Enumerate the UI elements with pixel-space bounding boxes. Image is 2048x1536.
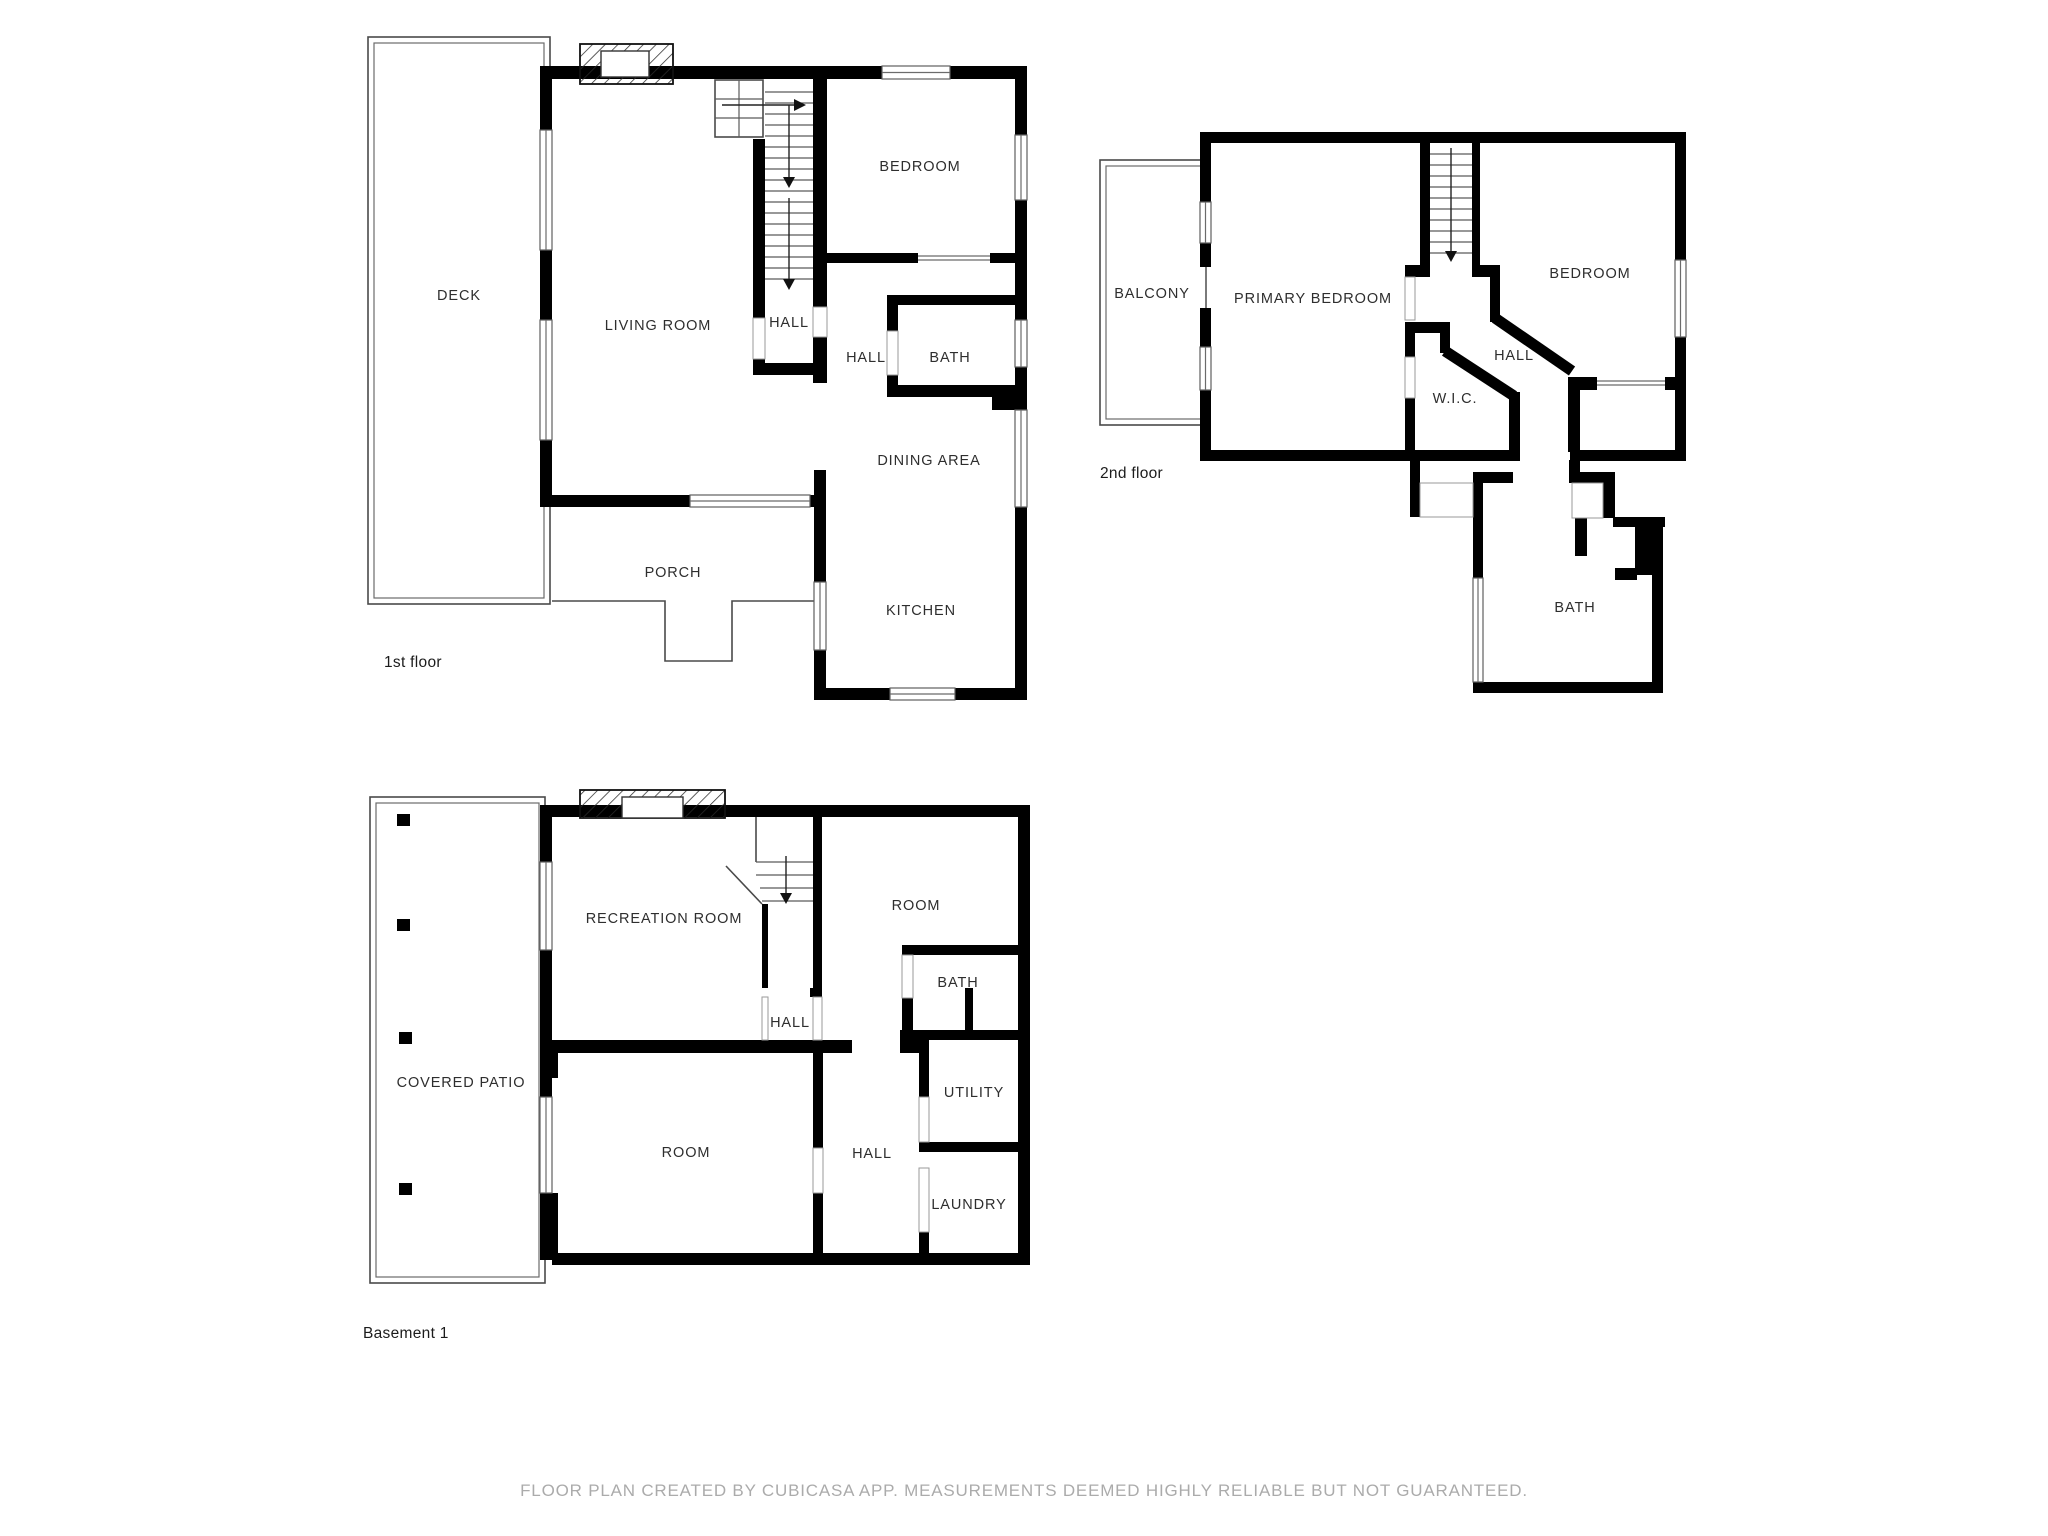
basement-floor-plan: RECREATION ROOM ROOM BATH HALL COVERED P… [363, 790, 1030, 1342]
room-label-primary-bedroom: PRIMARY BEDROOM [1234, 291, 1392, 307]
room-label-hall: HALL [846, 350, 886, 366]
second-floor-plan: BALCONY PRIMARY BEDROOM BEDROOM HALL W.I… [1100, 132, 1686, 693]
room-label-room-upper: ROOM [892, 898, 941, 914]
basement-door-openings [762, 955, 929, 1232]
room-label-porch: PORCH [645, 565, 702, 581]
room-label-laundry: LAUNDRY [931, 1197, 1006, 1213]
room-label-hall: HALL [1494, 348, 1534, 364]
room-label-hall-upper: HALL [770, 1015, 810, 1031]
second-floor-walls [1200, 132, 1686, 693]
porch-outline [552, 601, 814, 661]
floor-label-first: 1st floor [384, 654, 442, 671]
floor-label-second: 2nd floor [1100, 465, 1163, 482]
room-label-kitchen: KITCHEN [886, 603, 956, 619]
room-label-dining-area: DINING AREA [877, 453, 980, 469]
room-label-bath: BATH [1554, 600, 1595, 616]
basement-fireplace [580, 790, 725, 818]
room-label-covered-patio: COVERED PATIO [397, 1075, 526, 1091]
room-label-bedroom: BEDROOM [879, 159, 960, 175]
patio-post [399, 1183, 412, 1195]
fireplace [580, 44, 673, 84]
room-label-living-room: LIVING ROOM [605, 318, 712, 334]
room-label-recreation-room: RECREATION ROOM [586, 911, 743, 927]
first-floor-plan: DECK LIVING ROOM HALL HALL BATH BEDROOM … [368, 37, 1027, 700]
patio-post [397, 919, 410, 931]
second-floor-stairs [1430, 148, 1472, 262]
room-label-bedroom: BEDROOM [1549, 266, 1630, 282]
room-label-hall-lower: HALL [852, 1146, 892, 1162]
footer-disclaimer: FLOOR PLAN CREATED BY CUBICASA APP. MEAS… [520, 1481, 1528, 1500]
room-label-hall-stairs: HALL [769, 315, 809, 331]
patio-post [399, 1032, 412, 1044]
room-label-room-lower: ROOM [662, 1145, 711, 1161]
room-label-utility: UTILITY [944, 1085, 1004, 1101]
deck-outline [368, 37, 550, 604]
room-label-wic: W.I.C. [1433, 391, 1478, 407]
basement-stairs [726, 817, 813, 904]
room-label-bath: BATH [929, 350, 970, 366]
floor-plan-canvas: DECK LIVING ROOM HALL HALL BATH BEDROOM … [0, 0, 2048, 1536]
stair-direction-arrow [780, 856, 792, 904]
floor-label-basement: Basement 1 [363, 1325, 449, 1342]
basement-walls [540, 805, 1030, 1265]
room-label-bath: BATH [937, 975, 978, 991]
covered-patio-outline [370, 797, 545, 1283]
room-label-deck: DECK [437, 288, 481, 304]
patio-post [397, 814, 410, 826]
room-label-balcony: BALCONY [1114, 286, 1190, 302]
